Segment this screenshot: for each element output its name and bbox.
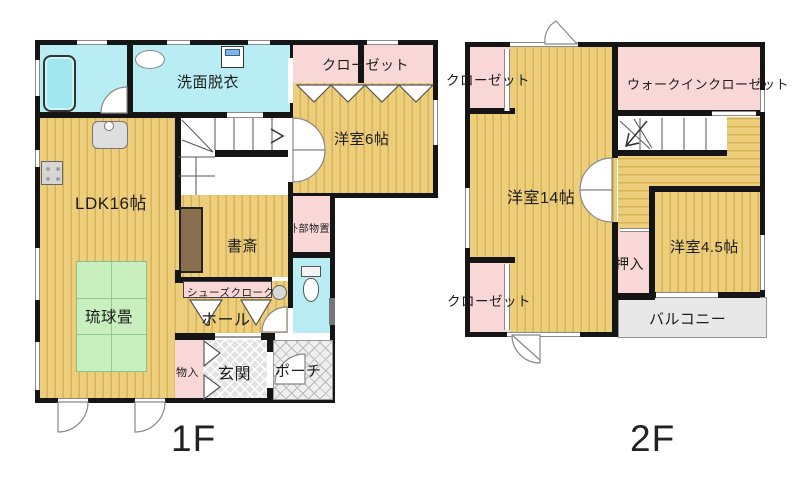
wall: [618, 150, 727, 156]
toilet-tank: [301, 266, 321, 277]
floor-plan: 洗面脱衣 クローゼット 洋室6帖 LDK16帖 書斎 外部物置 琉球畳 シューズ…: [0, 0, 800, 479]
oshiire-door-track: [620, 228, 649, 232]
wall: [649, 186, 655, 297]
label-closet-2f-bottom: クローゼット: [447, 290, 531, 310]
washroom-sink: [135, 50, 165, 69]
label-ryukyu-tatami: 琉球畳: [85, 305, 133, 327]
entrance-step-line: [215, 336, 261, 338]
label-storage-1f: 物入: [176, 364, 199, 380]
landing-2f: [727, 117, 760, 190]
wall: [175, 118, 181, 210]
label-hall: ホール: [201, 306, 251, 330]
wall: [649, 186, 760, 192]
toilet-window: [329, 298, 335, 325]
window: [465, 188, 470, 248]
window: [656, 292, 718, 298]
window: [248, 40, 270, 45]
label-washroom: 洗面脱衣: [177, 71, 239, 92]
bathtub: [43, 55, 76, 112]
kitchen-faucet: [104, 121, 114, 131]
label-floor-2f: 2F: [630, 418, 675, 460]
window: [367, 40, 398, 45]
label-study: 書斎: [227, 235, 258, 256]
window: [35, 248, 40, 300]
label-walk-in-closet: ウォークインクローゼット: [627, 74, 789, 93]
wall: [288, 252, 335, 258]
wall: [470, 257, 515, 263]
study-counter: [179, 207, 203, 273]
closet-door-track: [712, 111, 756, 116]
label-closet-2f-top: クローゼット: [446, 69, 530, 89]
label-oshiire: 押入: [615, 254, 644, 274]
stove: [41, 161, 63, 185]
wall: [612, 222, 618, 332]
window: [77, 40, 107, 45]
label-ext-storage: 外部物置: [288, 220, 330, 235]
window: [35, 60, 40, 96]
window: [35, 342, 40, 390]
door-opening: [507, 332, 580, 337]
label-western45: 洋室4.5帖: [670, 236, 739, 257]
label-balcony: バルコニー: [649, 308, 726, 329]
label-western6: 洋室6帖: [334, 128, 389, 149]
window: [510, 42, 578, 47]
door-opening: [227, 112, 263, 118]
label-ldk: LDK16帖: [75, 189, 147, 214]
wall: [175, 333, 215, 340]
label-entrance: 玄関: [218, 360, 251, 384]
label-shoe-cloak: シューズクローク: [187, 285, 274, 300]
door-opening: [58, 398, 88, 403]
door-opening: [288, 118, 293, 182]
door-opening: [135, 398, 165, 403]
window: [433, 100, 438, 145]
window: [167, 40, 190, 45]
label-closet-1f: クローゼット: [322, 55, 409, 75]
washing-machine-inner: [225, 49, 240, 56]
wall: [127, 45, 133, 112]
label-western14: 洋室14帖: [507, 184, 575, 208]
window: [760, 235, 765, 290]
wall: [612, 47, 618, 158]
wall: [215, 150, 293, 157]
door-opening: [288, 58, 293, 103]
toilet-bowl: [303, 278, 319, 302]
stairs-2f: [618, 117, 727, 152]
door-opening: [267, 352, 273, 388]
label-floor-1f: 1F: [171, 418, 216, 460]
label-porch: ポーチ: [275, 360, 322, 381]
wall: [261, 333, 275, 340]
window: [35, 150, 40, 167]
window: [760, 90, 765, 112]
